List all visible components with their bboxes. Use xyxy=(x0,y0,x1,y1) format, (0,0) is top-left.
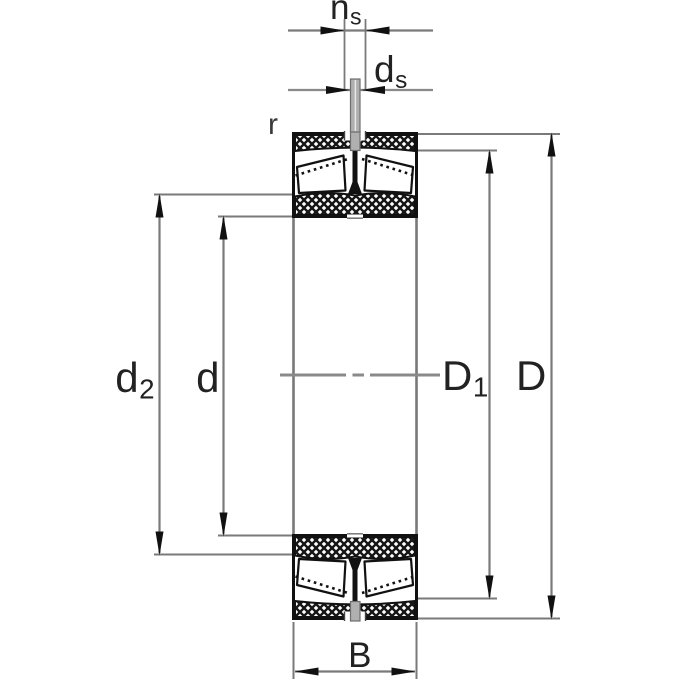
lubrication-hole xyxy=(351,131,361,151)
label-chamfer-radius: r xyxy=(268,110,279,140)
label-groove-width: ns xyxy=(320,0,372,29)
inner-ring-hatch xyxy=(295,193,415,215)
bearing-bottom-half-section xyxy=(294,533,417,621)
label-width: B xyxy=(338,638,382,673)
bearing-drawing-canvas xyxy=(0,0,680,680)
label-hole-diameter: ds xyxy=(374,51,408,93)
label-outside-diameter: D xyxy=(516,355,547,397)
bearing-dimension-diagram: ns ds r d2 d D1 D B xyxy=(0,0,680,680)
label-recess-diameter: d2 xyxy=(95,357,155,403)
label-shoulder-diameter: D1 xyxy=(442,355,489,401)
bearing-top-half-section xyxy=(294,131,417,219)
label-bore-diameter: d xyxy=(165,357,220,399)
dimension-ds xyxy=(288,79,433,132)
